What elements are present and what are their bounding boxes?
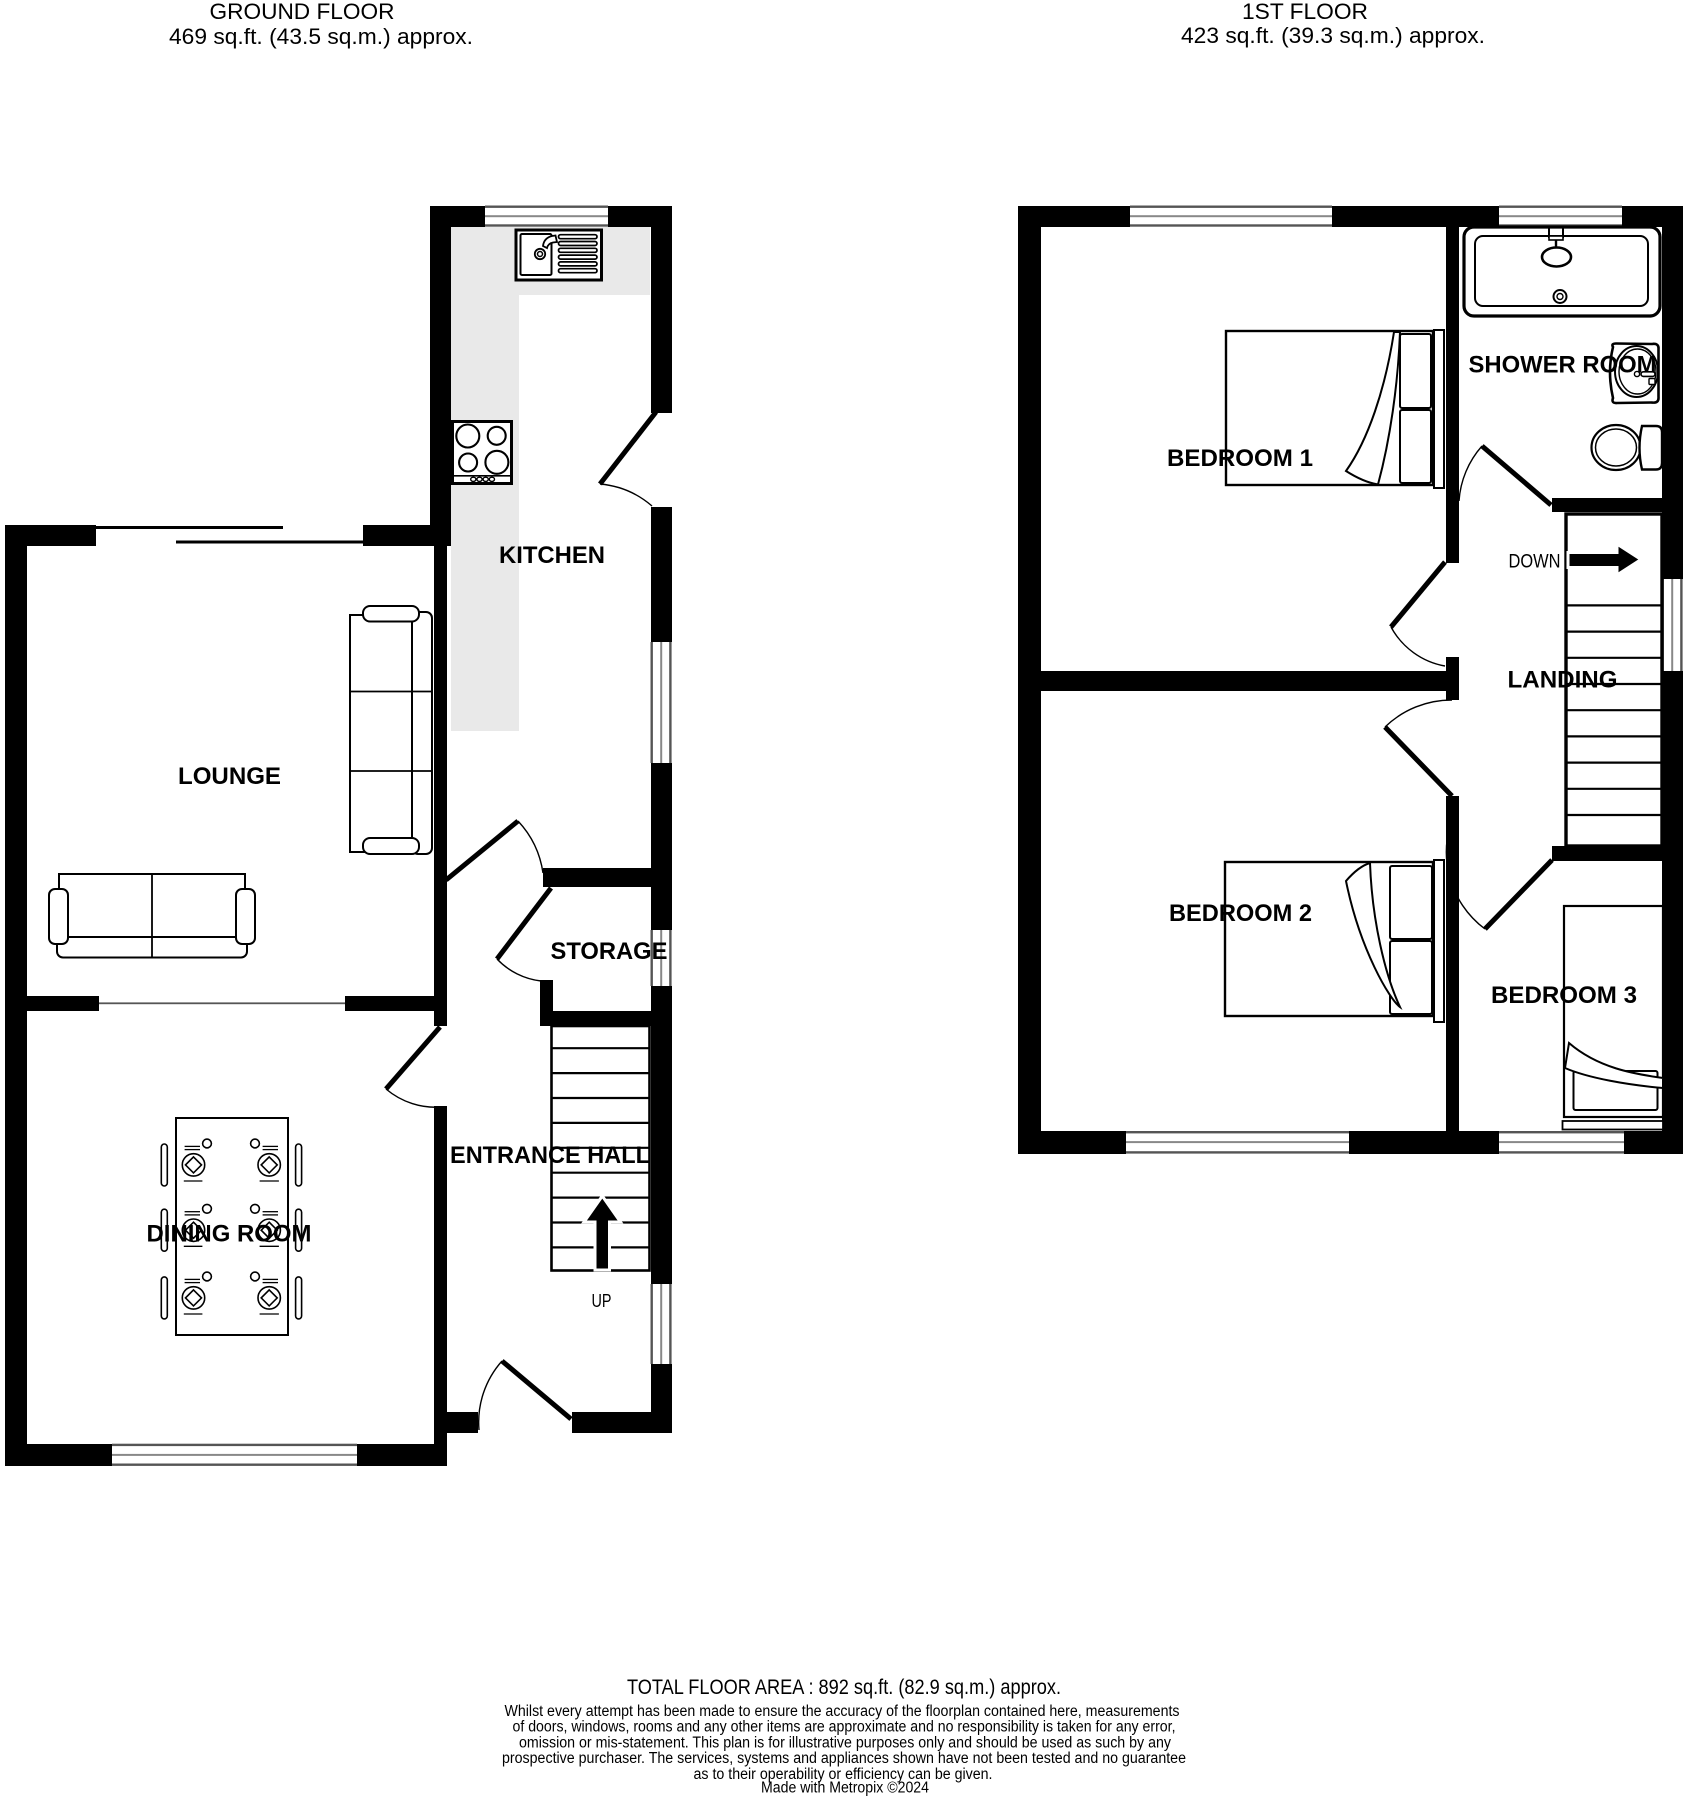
svg-text:STORAGE: STORAGE: [551, 938, 668, 965]
svg-text:469 sq.ft. (43.5 sq.m.) approx: 469 sq.ft. (43.5 sq.m.) approx.: [169, 24, 473, 49]
svg-text:Whilst every attempt has been: Whilst every attempt has been made to en…: [505, 1703, 1180, 1720]
svg-text:LANDING: LANDING: [1508, 667, 1618, 694]
svg-text:UP: UP: [592, 1291, 612, 1311]
svg-text:BEDROOM 3: BEDROOM 3: [1491, 982, 1637, 1009]
svg-text:of doors, windows, rooms and a: of doors, windows, rooms and any other i…: [513, 1719, 1176, 1736]
svg-text:prospective purchaser. The ser: prospective purchaser. The services, sys…: [502, 1750, 1186, 1767]
svg-text:DOWN: DOWN: [1509, 552, 1561, 573]
svg-text:Made with Metropix ©2024: Made with Metropix ©2024: [761, 1780, 929, 1797]
svg-text:GROUND FLOOR: GROUND FLOOR: [210, 0, 395, 24]
svg-text:omission or mis-statement. Thi: omission or mis-statement. This plan is …: [519, 1734, 1171, 1751]
svg-text:SHOWER ROOM: SHOWER ROOM: [1469, 352, 1657, 379]
svg-text:423 sq.ft. (39.3 sq.m.) approx: 423 sq.ft. (39.3 sq.m.) approx.: [1181, 23, 1485, 48]
svg-text:ENTRANCE HALL: ENTRANCE HALL: [450, 1142, 650, 1169]
svg-text:BEDROOM 1: BEDROOM 1: [1167, 445, 1313, 472]
svg-text:KITCHEN: KITCHEN: [499, 542, 605, 569]
svg-text:1ST FLOOR: 1ST FLOOR: [1242, 0, 1368, 24]
svg-text:DINING ROOM: DINING ROOM: [147, 1221, 312, 1248]
svg-text:TOTAL FLOOR AREA : 892 sq.ft.: TOTAL FLOOR AREA : 892 sq.ft. (82.9 sq.m…: [627, 1675, 1061, 1699]
svg-text:BEDROOM 2: BEDROOM 2: [1169, 900, 1312, 927]
svg-text:LOUNGE: LOUNGE: [178, 763, 281, 790]
